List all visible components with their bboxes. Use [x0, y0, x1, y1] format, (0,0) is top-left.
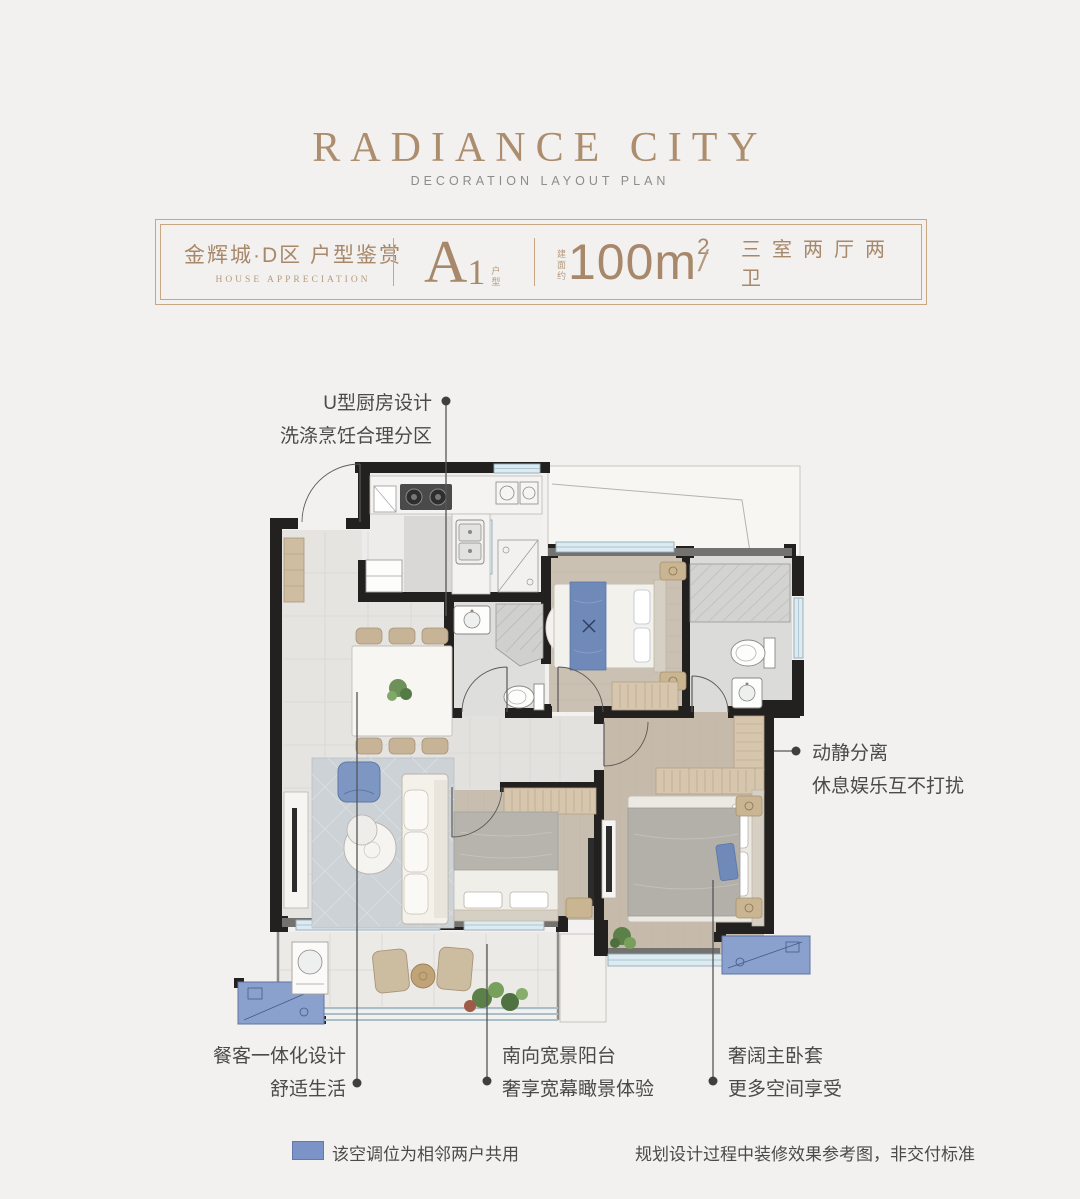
- annotation-line: 奢阔主卧套: [728, 1040, 842, 1073]
- nightstand-icon: [736, 796, 762, 816]
- fridge-icon: [366, 560, 402, 592]
- dining-table-icon: [352, 646, 452, 736]
- wardrobe3-icon: [504, 788, 596, 814]
- kitchen-sink-icon: [456, 520, 484, 564]
- annotation-line: 南向宽景阳台: [502, 1040, 654, 1073]
- annotation-line: U型厨房设计: [280, 387, 432, 420]
- ac-legend-swatch: [292, 1141, 324, 1160]
- floor-plan-svg: [0, 0, 1080, 1199]
- balcony-chair-icon: [372, 948, 410, 993]
- balcony-table-icon: [411, 964, 435, 988]
- annotation-kitchen: U型厨房设计 洗涤烹饪合理分区: [280, 387, 432, 453]
- annotation-balcony: 南向宽景阳台 奢享宽幕瞰景体验: [502, 1040, 654, 1106]
- annotation-line: 餐客一体化设计: [213, 1040, 346, 1073]
- annotation-master-suite: 奢阔主卧套 更多空间享受: [728, 1040, 842, 1106]
- annotation-line: 动静分离: [812, 737, 964, 770]
- tv-icon: [606, 826, 612, 892]
- ac-platform-right: [722, 936, 810, 974]
- shower-area: [690, 564, 790, 622]
- toilet-icon: [731, 638, 775, 668]
- toilet-icon: [504, 684, 544, 710]
- stove-icon: [400, 484, 452, 510]
- sofa-icon: [402, 774, 448, 924]
- annotation-line: 舒适生活: [213, 1073, 346, 1106]
- balcony-chair-icon: [436, 947, 474, 992]
- annotation-line: 奢享宽幕瞰景体验: [502, 1073, 654, 1106]
- nightstand-icon: [566, 898, 592, 918]
- nightstand-icon: [736, 898, 762, 918]
- tv-icon: [292, 808, 297, 892]
- annotation-line: 更多空间享受: [728, 1073, 842, 1106]
- entry-door: [302, 464, 360, 522]
- bed2-icon: [554, 580, 666, 672]
- annotation-line: 洗涤烹饪合理分区: [280, 420, 432, 453]
- nightstand-icon: [660, 562, 686, 580]
- ac-legend-text: 该空调位为相邻两户共用: [332, 1140, 519, 1165]
- annotation-quiet-zone: 动静分离 休息娱乐互不打扰: [812, 737, 964, 803]
- disclaimer-text: 规划设计过程中装修效果参考图，非交付标准: [635, 1140, 975, 1165]
- armchair-icon: [338, 762, 380, 802]
- annotation-dining: 餐客一体化设计 舒适生活: [213, 1040, 346, 1106]
- annotation-line: 休息娱乐互不打扰: [812, 770, 964, 803]
- washbasin-icon: [454, 606, 490, 634]
- balcony-sink-icon: [292, 942, 328, 994]
- page: RADIANCE CITY DECORATION LAYOUT PLAN 金辉城…: [0, 0, 1080, 1199]
- bed3-icon: [454, 812, 558, 921]
- wardrobe2-icon: [612, 682, 678, 710]
- washbasin-icon: [732, 678, 762, 708]
- tv-icon: [588, 838, 594, 906]
